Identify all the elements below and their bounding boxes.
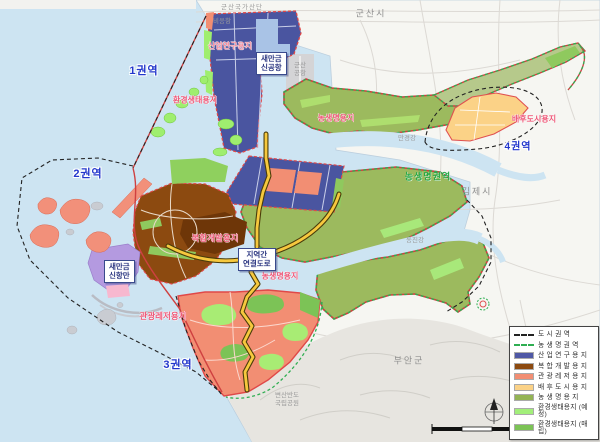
legend-label-eco-reclaimed: 환경생태용지 (매립) (538, 421, 594, 435)
legend-row-eco-reclaimed: 환경생태용지 (매립) (514, 421, 594, 435)
airport-box-line1: 새만금 (261, 54, 282, 63)
legend-row-agri-land: 농 생 명 용 지 (514, 394, 594, 402)
legend-label-complex: 복 합 개 발 용 지 (538, 363, 587, 370)
legend-swatch-agri-land (514, 394, 534, 401)
legend-label-tourism: 관 광 레 저 용 지 (538, 373, 587, 380)
port-box-line1: 새만금 (109, 262, 130, 271)
port-box: 새만금 신항만 (104, 260, 135, 283)
legend-swatch-tourism (514, 373, 534, 380)
port-box-line2: 신항만 (109, 271, 130, 280)
legend-label-industry: 산 업 연 구 용 지 (538, 352, 587, 359)
legend-label-agri-land: 농 생 명 용 지 (538, 394, 579, 401)
legend-row-eco-planned: 환경생태용지 (예정) (514, 404, 594, 418)
map-canvas: 군산국가산단 군산시 비응항 군산 공항 1권역 2권역 3권역 4권역 산업연… (0, 0, 600, 442)
road-box-line2: 연결도로 (243, 259, 271, 268)
legend-swatch-city-region (514, 334, 534, 336)
legend-row-agri-region: 농 생 명 권 역 (514, 341, 594, 349)
legend-row-tourism: 관 광 레 저 용 지 (514, 373, 594, 381)
legend-row-hinterland: 배 후 도 시 용 지 (514, 383, 594, 391)
airport-box-line2: 신공항 (261, 63, 282, 72)
airport-box: 새만금 신공항 (256, 52, 287, 75)
legend-row-complex: 복 합 개 발 용 지 (514, 362, 594, 370)
legend-label-eco-planned: 환경생태용지 (예정) (538, 404, 594, 418)
legend-swatch-hinterland (514, 384, 534, 391)
legend-label-hinterland: 배 후 도 시 용 지 (538, 384, 587, 391)
road-box-line1: 지역간 (243, 250, 271, 259)
legend-swatch-agri-region (514, 344, 534, 346)
legend-swatch-eco-planned (514, 408, 534, 415)
legend-row-city-region: 도 시 권 역 (514, 331, 594, 339)
road-box: 지역간 연결도로 (238, 248, 276, 271)
legend-swatch-complex (514, 363, 534, 370)
legend-label-city-region: 도 시 권 역 (538, 331, 570, 338)
legend-swatch-industry (514, 352, 534, 359)
legend-swatch-eco-reclaimed (514, 424, 534, 431)
legend-label-agri-region: 농 생 명 권 역 (538, 342, 579, 349)
legend: 도 시 권 역 농 생 명 권 역 산 업 연 구 용 지 복 합 개 발 용 … (509, 326, 599, 440)
legend-row-industry: 산 업 연 구 용 지 (514, 352, 594, 360)
